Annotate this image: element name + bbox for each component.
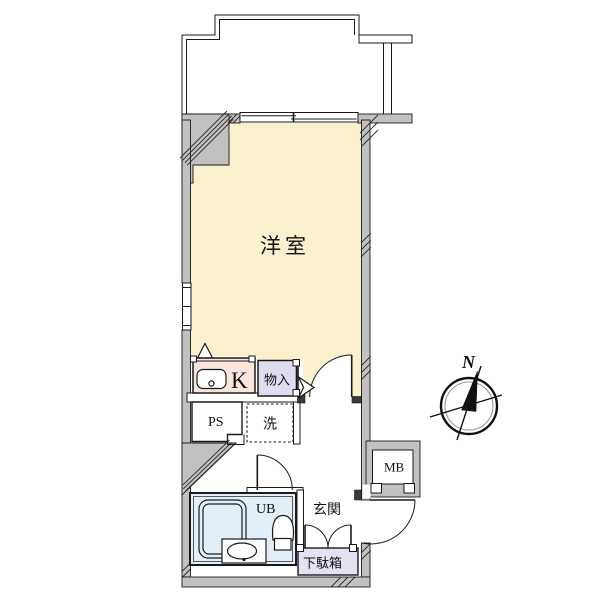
meter-box-tab-right (404, 484, 415, 494)
closet-frame-tab-bottom (293, 390, 300, 397)
closet-area: 物入 (258, 360, 300, 397)
sliding-window-balcony (240, 113, 358, 123)
unit-bath-label: UB (256, 502, 275, 517)
wall-entrance-left (297, 490, 304, 550)
entrance-label: 玄関 (313, 501, 341, 518)
window-left-wall (183, 283, 192, 330)
shoebox-frame-tab-right (350, 545, 357, 552)
wall-post-door-right (352, 397, 362, 404)
balcony-outline (182, 15, 412, 114)
meter-box-tab-left (371, 484, 382, 494)
compass: N (430, 352, 502, 440)
meter-box-label: MB (384, 460, 405, 475)
floor-plan-canvas: K 物入 PS 洗 UB 玄関 (0, 0, 600, 600)
kitchen-frame-tab-left (191, 356, 197, 362)
laundry-label: 洗 (263, 417, 277, 433)
compass-north-label: N (461, 352, 476, 372)
balcony-rail-bar (359, 35, 412, 43)
main-room-label: 洋室 (260, 234, 310, 258)
toilet-tank (275, 539, 292, 551)
meter-box: MB (363, 441, 421, 499)
kitchen-label: K (231, 368, 248, 393)
closet-label: 物入 (264, 373, 290, 388)
vanity-drain (242, 558, 245, 561)
wall-hall-corridor (294, 402, 301, 444)
floor-plan-svg: K 物入 PS 洗 UB 玄関 (0, 0, 600, 600)
closet-frame-tab-top (293, 360, 300, 367)
shoe-box-label: 下駄箱 (303, 556, 342, 571)
kitchen-frame-tab-right (249, 356, 255, 362)
laundry-area: 洗 (247, 404, 293, 442)
shoebox-frame-tab-left (297, 545, 304, 552)
wall-opening-mb (363, 485, 371, 499)
unit-bath-area: UB (190, 493, 296, 565)
pipe-space-label: PS (208, 415, 224, 430)
toilet-bowl (273, 516, 294, 541)
entrance-door (362, 500, 415, 544)
wall-post-entrance (355, 490, 362, 500)
